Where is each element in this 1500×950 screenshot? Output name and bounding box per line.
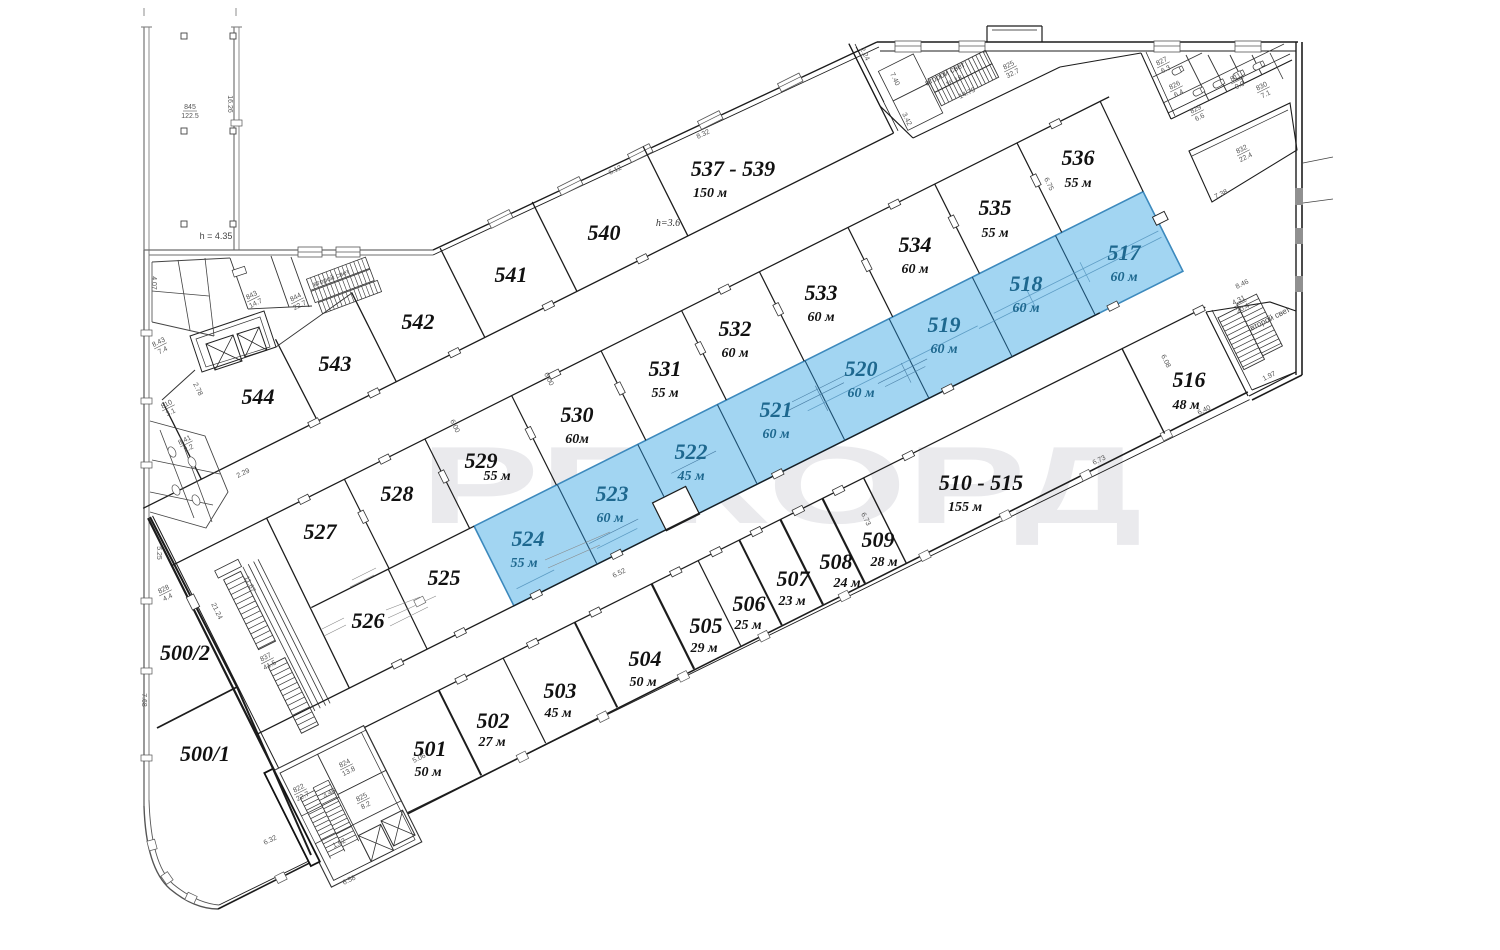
svg-text:60 м: 60 м	[721, 346, 749, 361]
svg-text:845: 845	[184, 104, 196, 111]
svg-text:534: 534	[899, 232, 932, 257]
svg-text:519: 519	[928, 312, 961, 337]
svg-text:500/1: 500/1	[180, 741, 230, 766]
svg-text:504: 504	[629, 646, 662, 671]
svg-text:25 м: 25 м	[733, 618, 762, 633]
svg-text:524: 524	[512, 526, 545, 551]
svg-text:60 м: 60 м	[762, 427, 790, 442]
svg-text:521: 521	[760, 397, 793, 422]
svg-text:60 м: 60 м	[901, 262, 929, 277]
svg-text:55 м: 55 м	[651, 386, 679, 401]
svg-text:23 м: 23 м	[777, 594, 806, 609]
svg-text:536: 536	[1062, 145, 1095, 170]
svg-text:544: 544	[242, 384, 275, 409]
svg-text:155 м: 155 м	[948, 500, 983, 515]
svg-text:523: 523	[596, 481, 629, 506]
svg-text:27 м: 27 м	[477, 735, 506, 750]
svg-text:532: 532	[719, 316, 752, 341]
svg-text:508: 508	[820, 549, 853, 574]
svg-text:122.5: 122.5	[181, 113, 199, 120]
svg-text:60 м: 60 м	[807, 310, 835, 325]
svg-text:510 - 515: 510 - 515	[939, 470, 1023, 495]
svg-text:537 - 539: 537 - 539	[691, 156, 775, 181]
svg-text:540: 540	[588, 220, 621, 245]
svg-text:516: 516	[1173, 367, 1206, 392]
svg-text:50 м: 50 м	[629, 675, 657, 690]
svg-text:60 м: 60 м	[930, 342, 958, 357]
svg-text:5.25: 5.25	[155, 546, 162, 560]
svg-text:528: 528	[381, 481, 414, 506]
svg-text:530: 530	[561, 402, 594, 427]
svg-text:531: 531	[649, 356, 682, 381]
svg-text:500/2: 500/2	[160, 640, 210, 665]
svg-text:509: 509	[862, 527, 895, 552]
svg-text:60 м: 60 м	[847, 386, 875, 401]
svg-text:60 м: 60 м	[1012, 301, 1040, 316]
svg-text:16.26: 16.26	[226, 95, 233, 113]
svg-text:55 м: 55 м	[1064, 176, 1092, 191]
svg-text:533: 533	[805, 280, 838, 305]
svg-text:522: 522	[675, 439, 708, 464]
svg-text:7.68: 7.68	[140, 693, 147, 707]
svg-text:29 м: 29 м	[689, 641, 718, 656]
svg-text:60м: 60м	[565, 432, 589, 447]
svg-text:502: 502	[477, 708, 510, 733]
svg-text:55 м: 55 м	[510, 556, 538, 571]
svg-text:h = 4.35: h = 4.35	[200, 231, 233, 241]
svg-text:h=3.6: h=3.6	[656, 218, 680, 229]
svg-text:50 м: 50 м	[414, 765, 442, 780]
svg-text:55 м: 55 м	[981, 226, 1009, 241]
svg-text:503: 503	[544, 678, 577, 703]
svg-text:60 м: 60 м	[1110, 270, 1138, 285]
svg-text:4.07: 4.07	[150, 276, 157, 290]
svg-text:150 м: 150 м	[693, 186, 728, 201]
svg-text:24 м: 24 м	[832, 576, 861, 591]
svg-text:526: 526	[352, 608, 385, 633]
svg-text:527: 527	[304, 519, 338, 544]
svg-text:506: 506	[733, 591, 766, 616]
svg-text:507: 507	[777, 566, 811, 591]
svg-text:542: 542	[402, 309, 435, 334]
svg-text:520: 520	[845, 356, 878, 381]
svg-text:518: 518	[1010, 271, 1043, 296]
svg-text:45 м: 45 м	[676, 469, 705, 484]
svg-text:28 м: 28 м	[869, 555, 898, 570]
svg-text:45 м: 45 м	[543, 706, 572, 721]
svg-text:535: 535	[979, 195, 1012, 220]
svg-text:543: 543	[319, 351, 352, 376]
svg-text:541: 541	[495, 262, 528, 287]
svg-text:505: 505	[690, 613, 723, 638]
svg-text:525: 525	[428, 565, 461, 590]
svg-text:60 м: 60 м	[596, 511, 624, 526]
svg-text:55 м: 55 м	[483, 469, 511, 484]
svg-text:517: 517	[1108, 240, 1142, 265]
